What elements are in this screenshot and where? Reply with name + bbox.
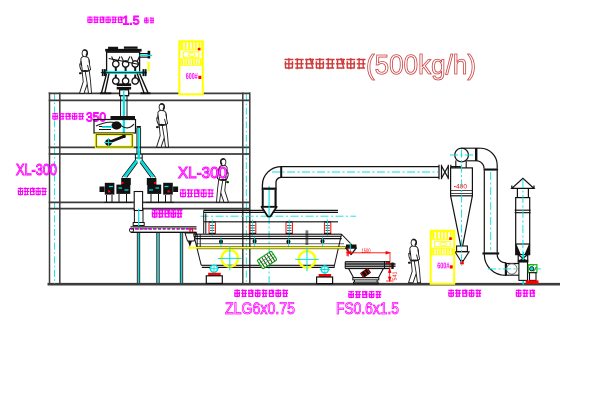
svg-text:FS0.6x1.5: FS0.6x1.5	[336, 300, 399, 318]
svg-text:350: 350	[86, 111, 106, 125]
svg-text:600#: 600#	[186, 72, 198, 81]
svg-text:XL-300: XL-300	[178, 165, 227, 182]
svg-text:XL-300: XL-300	[16, 162, 57, 179]
svg-text:600#: 600#	[437, 261, 449, 270]
svg-text:ZLG6x0.75: ZLG6x0.75	[225, 300, 295, 318]
svg-text:(500kg/h): (500kg/h)	[366, 49, 476, 80]
svg-text:1500: 1500	[362, 248, 371, 254]
svg-text:541: 541	[392, 272, 398, 281]
svg-text:1.5: 1.5	[123, 14, 140, 28]
